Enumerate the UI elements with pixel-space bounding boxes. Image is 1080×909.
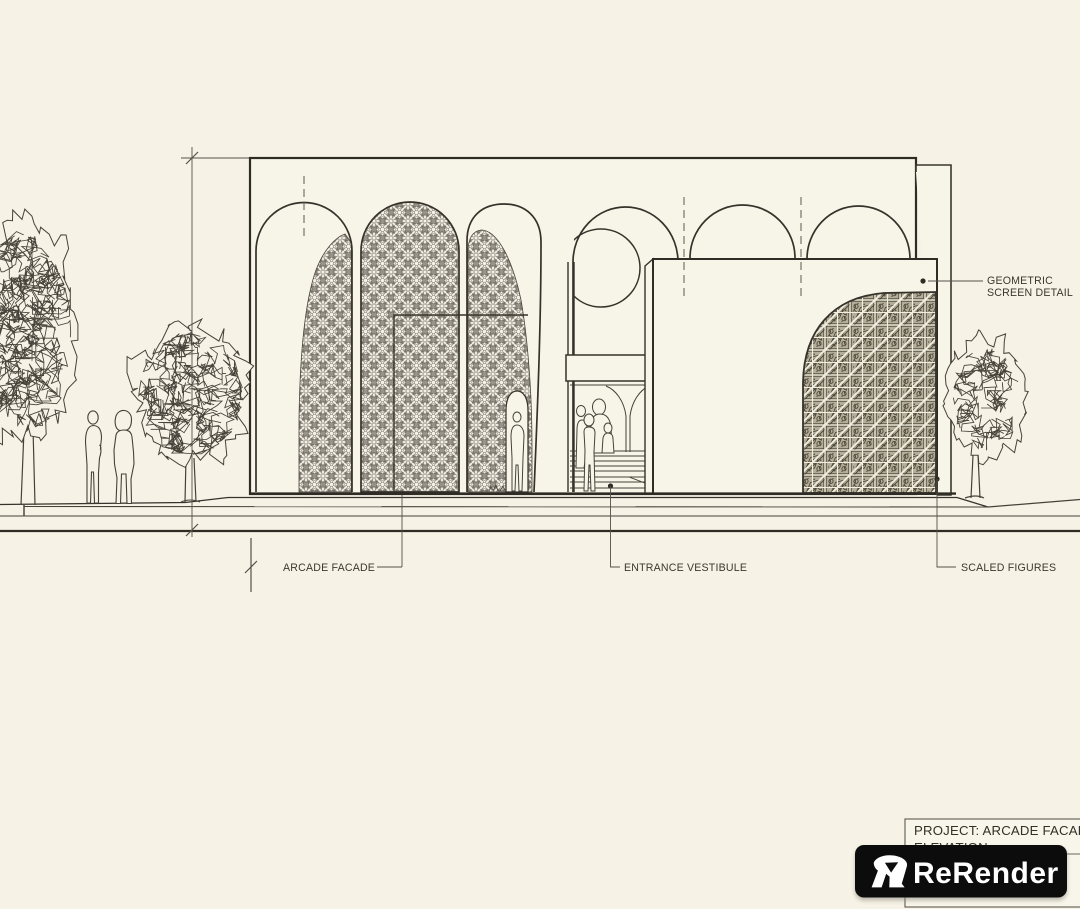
svg-text:PROJECT: ARCADE FACADE: PROJECT: ARCADE FACADE bbox=[914, 823, 1080, 838]
svg-text:GEOMETRIC: GEOMETRIC bbox=[987, 275, 1053, 287]
svg-text:SCREEN DETAIL: SCREEN DETAIL bbox=[987, 287, 1073, 299]
svg-text:ReRender: ReRender bbox=[913, 857, 1059, 890]
svg-text:ENTRANCE VESTIBULE: ENTRANCE VESTIBULE bbox=[624, 562, 747, 574]
svg-text:SCALED FIGURES: SCALED FIGURES bbox=[961, 562, 1056, 574]
svg-text:ARCADE FACADE: ARCADE FACADE bbox=[283, 562, 375, 574]
